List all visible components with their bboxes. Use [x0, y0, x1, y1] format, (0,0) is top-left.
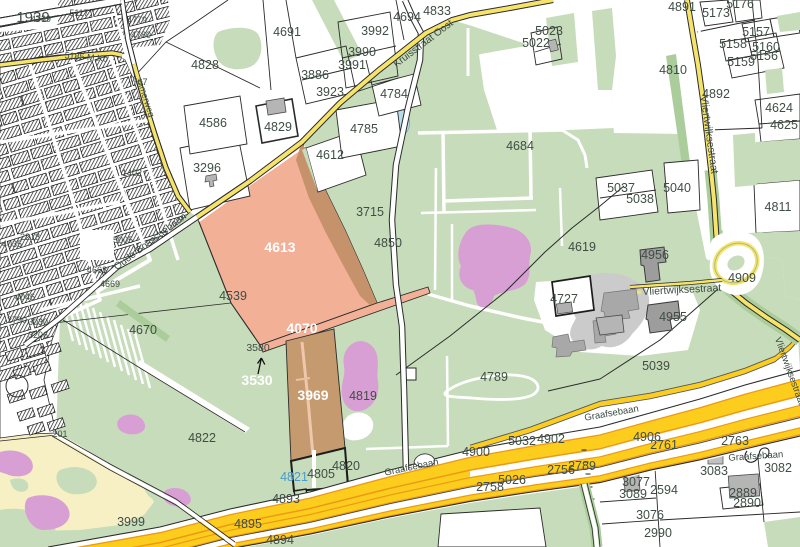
svg-text:5005: 5005 — [113, 235, 133, 245]
svg-text:3030: 3030 — [28, 317, 48, 327]
svg-text:5176: 5176 — [726, 0, 754, 11]
svg-text:3991: 3991 — [338, 58, 366, 72]
svg-text:3580: 3580 — [246, 342, 270, 354]
svg-text:4805: 4805 — [307, 467, 335, 481]
svg-text:4619: 4619 — [568, 240, 596, 254]
svg-text:5032: 5032 — [508, 434, 536, 448]
svg-text:3206: 3206 — [28, 330, 48, 340]
svg-text:4539: 4539 — [219, 289, 247, 303]
svg-text:4669: 4669 — [100, 279, 120, 289]
svg-text:4902: 4902 — [537, 432, 565, 446]
svg-text:3296: 3296 — [193, 161, 221, 175]
svg-text:5039: 5039 — [642, 359, 670, 373]
svg-text:4819: 4819 — [349, 389, 377, 403]
svg-text:4955: 4955 — [659, 310, 687, 324]
svg-text:2594: 2594 — [650, 483, 678, 497]
svg-text:4670: 4670 — [129, 323, 157, 337]
svg-text:3990: 3990 — [348, 45, 376, 59]
svg-text:4821: 4821 — [280, 470, 308, 484]
svg-text:2790: 2790 — [7, 315, 27, 325]
svg-text:3969: 3969 — [297, 387, 328, 403]
svg-text:3715: 3715 — [356, 205, 384, 219]
svg-text:5040: 5040 — [663, 181, 691, 195]
svg-text:2761: 2761 — [650, 438, 678, 452]
svg-text:2990: 2990 — [644, 526, 672, 540]
svg-text:4663: 4663 — [87, 265, 107, 275]
svg-text:4785: 4785 — [350, 122, 378, 136]
svg-text:4850: 4850 — [374, 236, 402, 250]
svg-text:2789: 2789 — [568, 459, 596, 473]
svg-text:4624: 4624 — [765, 101, 793, 115]
svg-text:4694: 4694 — [393, 10, 421, 24]
svg-text:4035: 4035 — [2, 239, 22, 249]
svg-text:3083: 3083 — [700, 464, 728, 478]
svg-text:2758: 2758 — [476, 480, 504, 494]
svg-text:2763: 2763 — [721, 434, 749, 448]
svg-text:4829: 4829 — [264, 120, 292, 134]
svg-text:5159: 5159 — [727, 55, 755, 69]
svg-text:3082: 3082 — [764, 461, 792, 475]
svg-text:4900: 4900 — [462, 445, 490, 459]
svg-text:3530: 3530 — [241, 372, 272, 388]
svg-text:4046: 4046 — [15, 292, 35, 302]
svg-text:1939: 1939 — [16, 9, 49, 26]
svg-text:4895: 4895 — [234, 517, 262, 531]
svg-text:3992: 3992 — [361, 24, 389, 38]
svg-text:4784: 4784 — [380, 87, 408, 101]
svg-text:3923: 3923 — [316, 85, 344, 99]
svg-text:4586: 4586 — [199, 116, 227, 130]
svg-text:5038: 5038 — [626, 192, 654, 206]
svg-text:5158: 5158 — [719, 37, 747, 51]
svg-text:4891: 4891 — [668, 0, 696, 14]
svg-text:5117: 5117 — [69, 8, 88, 18]
svg-text:3076: 3076 — [636, 508, 664, 522]
svg-text:4820: 4820 — [332, 459, 360, 473]
svg-text:4810: 4810 — [659, 63, 687, 77]
svg-text:4612: 4612 — [316, 148, 344, 162]
svg-text:4894: 4894 — [266, 533, 294, 547]
svg-text:5022: 5022 — [522, 36, 550, 50]
svg-text:3999: 3999 — [117, 515, 145, 529]
svg-text:4070: 4070 — [286, 320, 317, 336]
svg-text:4833: 4833 — [423, 4, 451, 18]
svg-text:4625: 4625 — [770, 118, 798, 132]
svg-text:201: 201 — [52, 429, 67, 439]
svg-text:4909: 4909 — [728, 271, 756, 285]
svg-text:4780: 4780 — [131, 30, 151, 40]
svg-text:3886: 3886 — [301, 68, 329, 82]
svg-text:1402: 1402 — [122, 168, 142, 178]
svg-text:4811: 4811 — [765, 200, 792, 214]
svg-text:4893: 4893 — [272, 492, 300, 506]
svg-text:4684: 4684 — [506, 139, 534, 153]
svg-text:3089: 3089 — [619, 487, 647, 501]
svg-text:2890: 2890 — [733, 496, 761, 510]
svg-text:4727: 4727 — [550, 292, 578, 306]
svg-text:2218: 2218 — [20, 232, 40, 242]
svg-text:4691: 4691 — [273, 25, 301, 39]
svg-text:4956: 4956 — [641, 248, 669, 262]
svg-text:4613: 4613 — [264, 239, 295, 255]
svg-text:4779: 4779 — [127, 15, 147, 25]
svg-text:4828: 4828 — [191, 58, 219, 72]
svg-text:4822: 4822 — [188, 431, 216, 445]
svg-text:4789: 4789 — [480, 370, 508, 384]
